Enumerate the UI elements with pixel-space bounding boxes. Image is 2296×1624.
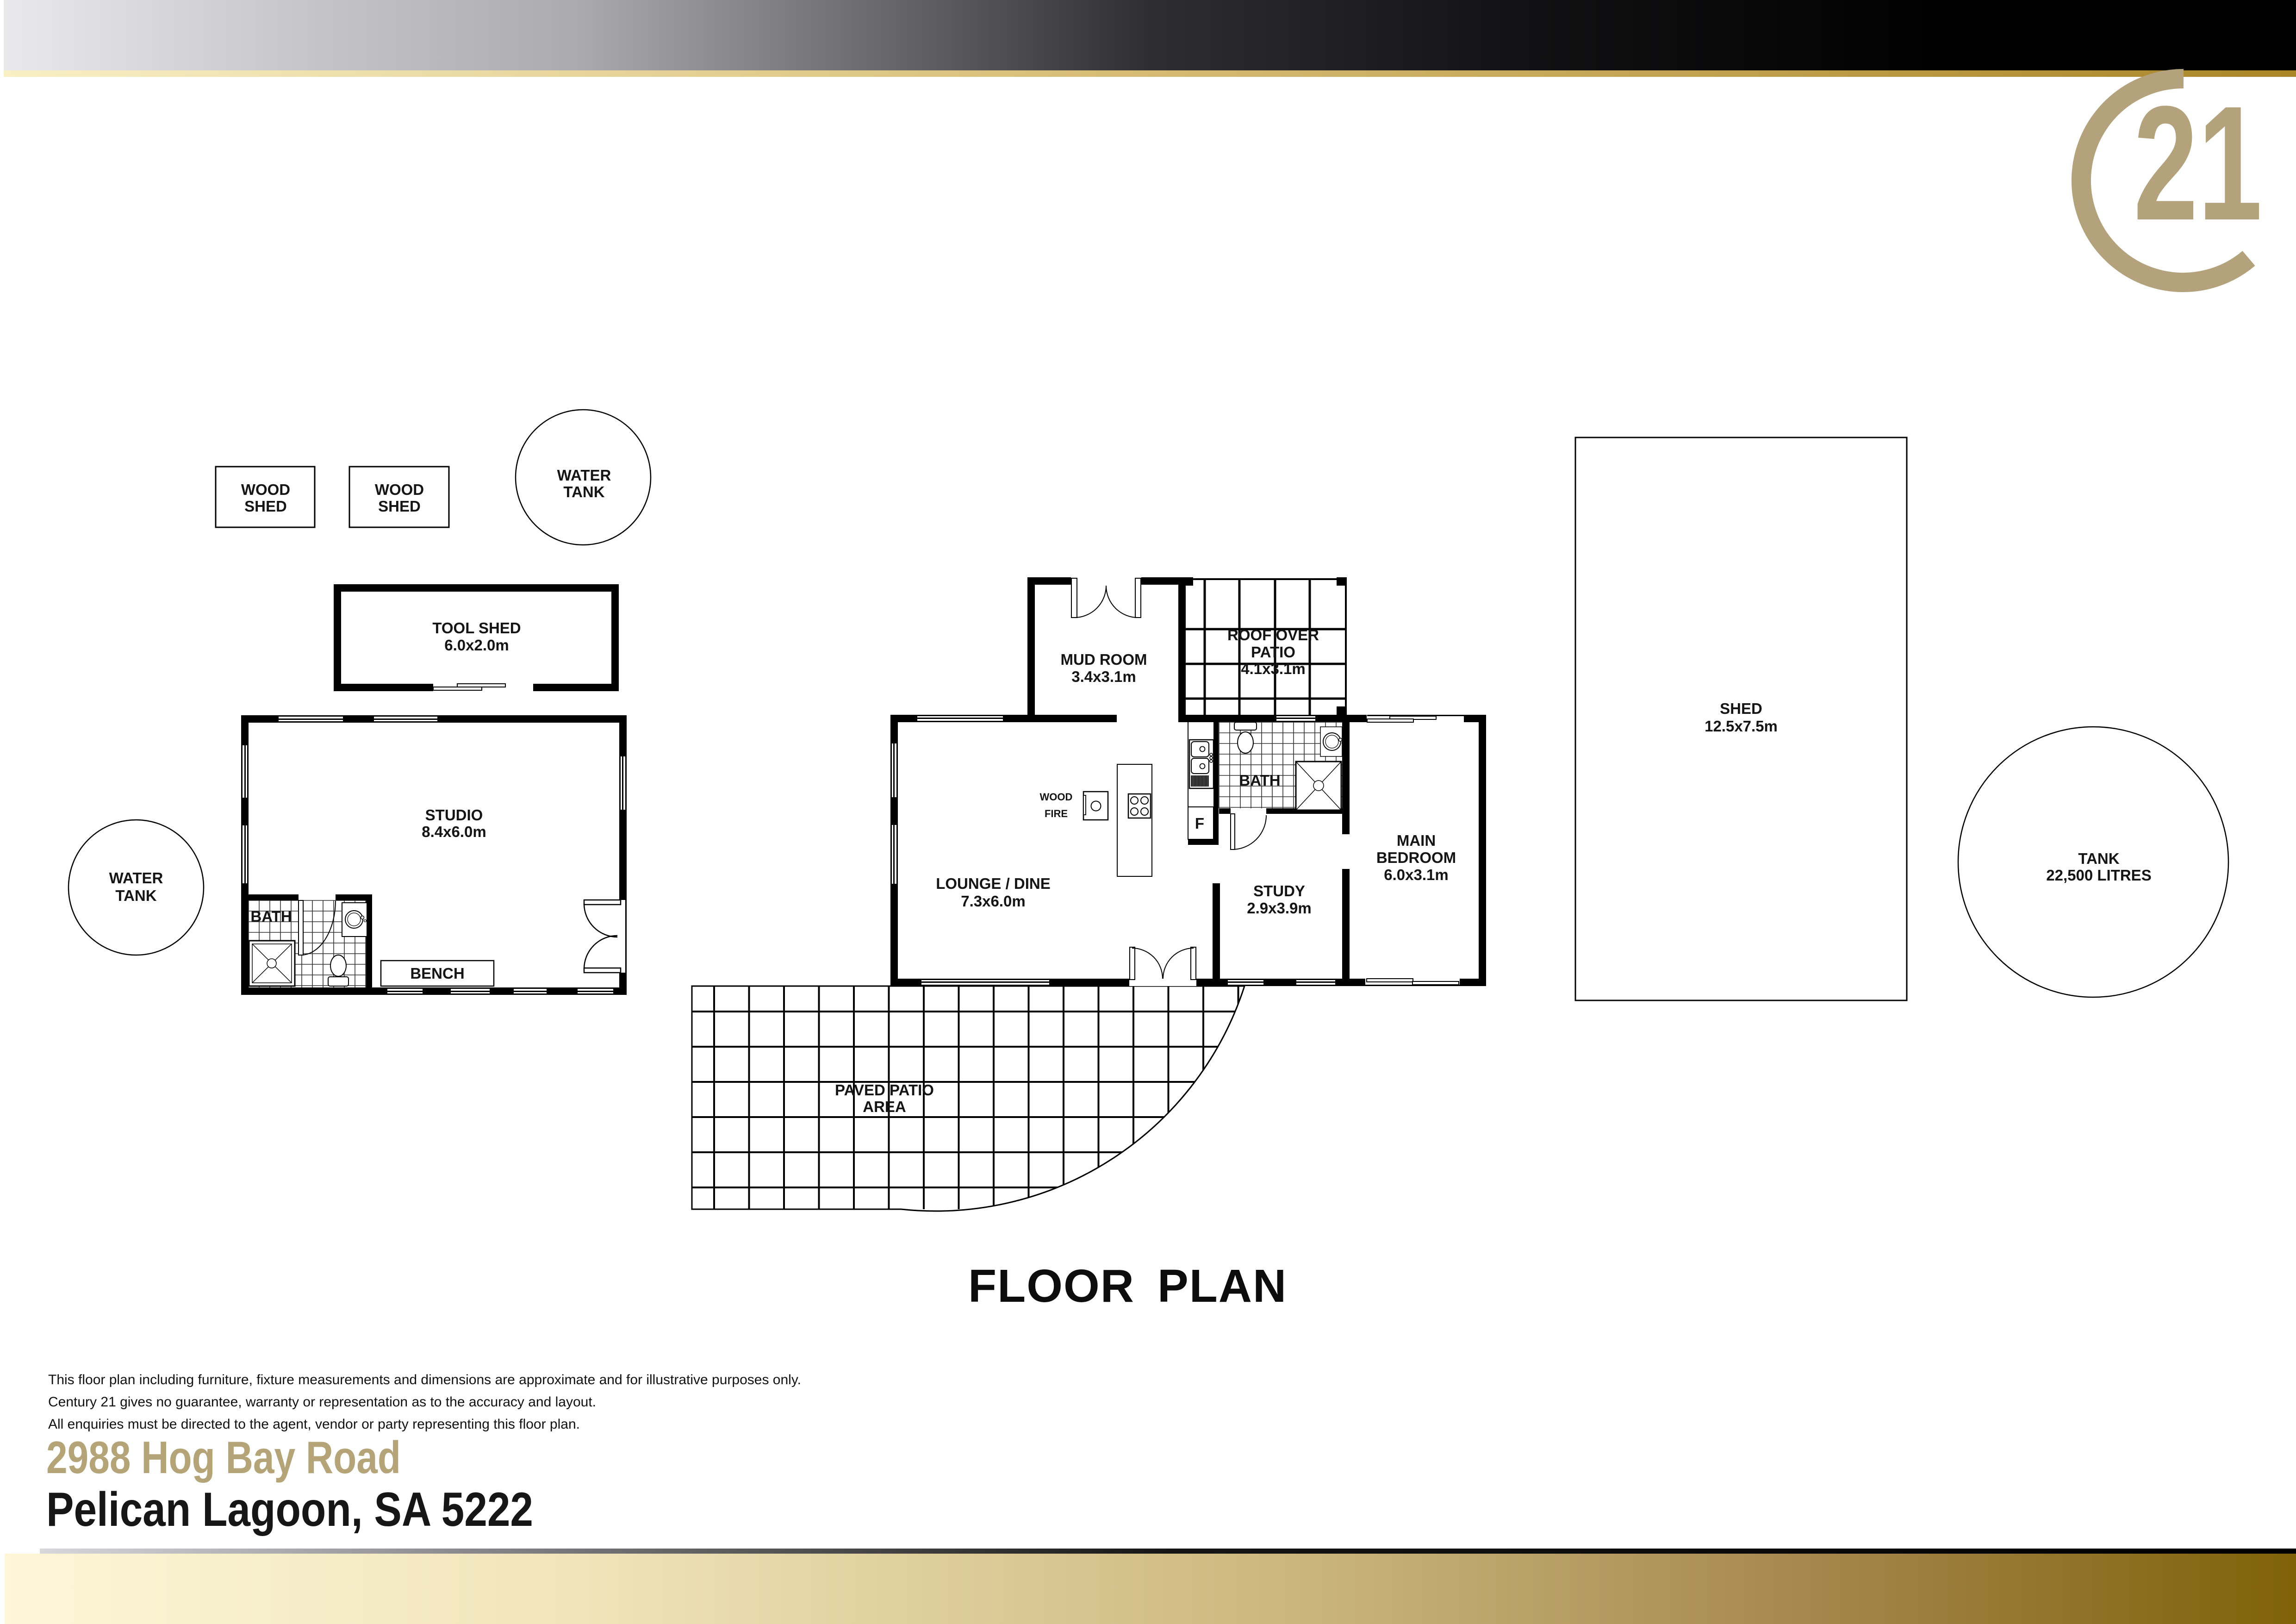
- svg-text:WOOD: WOOD: [1040, 791, 1073, 803]
- svg-text:AREA: AREA: [863, 1098, 906, 1115]
- svg-text:BATH: BATH: [1239, 772, 1280, 789]
- svg-text:Century 21 gives no guarantee,: Century 21 gives no guarantee, warranty …: [48, 1394, 596, 1410]
- svg-text:MUD ROOM: MUD ROOM: [1061, 651, 1147, 668]
- svg-text:PATIO: PATIO: [1251, 643, 1295, 661]
- svg-text:BENCH: BENCH: [410, 965, 464, 982]
- svg-text:PLAN: PLAN: [1157, 1260, 1287, 1312]
- svg-text:SHED: SHED: [378, 498, 421, 515]
- svg-text:7.3x6.0m: 7.3x6.0m: [961, 893, 1025, 910]
- svg-text:6.0x2.0m: 6.0x2.0m: [444, 637, 509, 654]
- svg-text:LOUNGE / DINE: LOUNGE / DINE: [936, 875, 1051, 892]
- svg-text:TOOL SHED: TOOL SHED: [432, 619, 521, 637]
- svg-text:MAIN: MAIN: [1397, 832, 1436, 849]
- svg-text:6.0x3.1m: 6.0x3.1m: [1384, 866, 1448, 883]
- svg-text:WOOD: WOOD: [375, 481, 424, 498]
- svg-text:BATH: BATH: [250, 908, 292, 925]
- svg-text:TANK: TANK: [2078, 850, 2119, 867]
- svg-text:FIRE: FIRE: [1045, 808, 1068, 819]
- svg-text:12.5x7.5m: 12.5x7.5m: [1705, 718, 1778, 735]
- svg-text:ROOF OVER: ROOF OVER: [1227, 626, 1319, 643]
- svg-text:WOOD: WOOD: [241, 481, 290, 498]
- svg-text:All enquiries must be directed: All enquiries must be directed to the ag…: [48, 1417, 580, 1432]
- svg-text:SHED: SHED: [244, 498, 287, 515]
- svg-text:SHED: SHED: [1720, 700, 1762, 717]
- svg-text:STUDIO: STUDIO: [425, 806, 483, 824]
- svg-text:FLOOR: FLOOR: [968, 1260, 1135, 1312]
- svg-text:21: 21: [2134, 72, 2262, 254]
- svg-text:TANK: TANK: [115, 887, 156, 904]
- svg-text:PAVED PATIO: PAVED PATIO: [835, 1081, 934, 1099]
- svg-text:4.1x3.1m: 4.1x3.1m: [1241, 660, 1305, 677]
- svg-text:3.4x3.1m: 3.4x3.1m: [1071, 668, 1136, 685]
- svg-text:TANK: TANK: [563, 483, 604, 500]
- svg-text:This floor plan including furn: This floor plan including furniture, fix…: [48, 1372, 801, 1387]
- svg-text:Pelican Lagoon, SA 5222: Pelican Lagoon, SA 5222: [46, 1483, 533, 1537]
- svg-text:WATER: WATER: [109, 869, 163, 887]
- svg-text:WATER: WATER: [557, 467, 611, 484]
- svg-text:2988 Hog Bay Road: 2988 Hog Bay Road: [46, 1432, 401, 1483]
- svg-text:2.9x3.9m: 2.9x3.9m: [1247, 899, 1311, 917]
- svg-text:STUDY: STUDY: [1253, 882, 1305, 899]
- svg-text:BEDROOM: BEDROOM: [1376, 849, 1456, 866]
- svg-text:F: F: [1195, 815, 1204, 832]
- svg-text:8.4x6.0m: 8.4x6.0m: [422, 823, 486, 840]
- svg-text:22,500 LITRES: 22,500 LITRES: [2046, 867, 2151, 884]
